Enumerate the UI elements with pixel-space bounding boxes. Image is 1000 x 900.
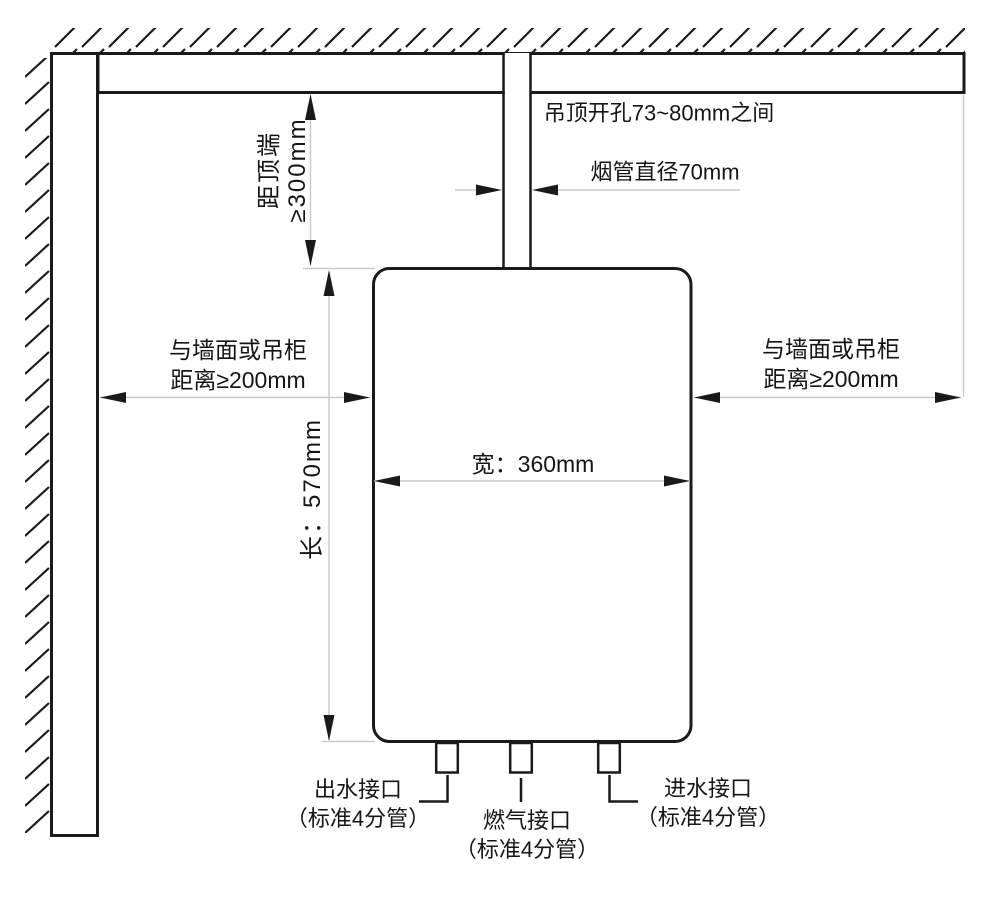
top-clearance-label: 距顶端 ≥300mm: [256, 117, 312, 222]
outlet-label: 出水接口 （标准4分管）: [286, 775, 430, 833]
ceiling-slab-hatch: [52, 28, 965, 52]
left-clearance-label: 与墙面或吊柜 距离≥200mm: [169, 335, 307, 395]
right-clearance-line1: 与墙面或吊柜: [762, 334, 900, 364]
outlet-label-line1: 出水接口: [286, 775, 430, 804]
right-clearance-label: 与墙面或吊柜 距离≥200mm: [762, 334, 900, 394]
inlet-label-line1: 进水接口: [636, 774, 780, 803]
gas-stub: [510, 743, 532, 773]
gas-label-line1: 燃气接口: [455, 806, 599, 835]
left-clearance-line2: 距离≥200mm: [169, 365, 307, 395]
top-clearance-line1: 距顶端: [256, 117, 284, 222]
top-clearance-line2: ≥300mm: [284, 117, 312, 222]
inlet-label-line2: （标准4分管）: [636, 803, 780, 832]
inlet-label: 进水接口 （标准4分管）: [636, 774, 780, 832]
right-clearance-line2: 距离≥200mm: [762, 364, 900, 394]
ceiling-opening-label: 吊顶开孔73~80mm之间: [544, 100, 774, 129]
gas-label-line2: （标准4分管）: [455, 835, 599, 864]
outlet-stub: [436, 743, 458, 773]
inlet-stub: [598, 743, 620, 773]
unit-width-label: 宽：360mm: [472, 449, 595, 479]
outlet-label-line2: （标准4分管）: [286, 804, 430, 833]
wall-hatch: [25, 58, 50, 833]
unit-height-label: 长：570mm: [299, 418, 327, 560]
left-wall: [52, 54, 98, 836]
inlet-leader-line: [610, 775, 639, 802]
water-heater-body: [374, 269, 692, 742]
gas-label: 燃气接口 （标准4分管）: [455, 806, 599, 864]
installation-diagram: 吊顶开孔73~80mm之间 烟管直径70mm 距顶端 ≥300mm 长：570m…: [0, 0, 1000, 900]
flue-diameter-label: 烟管直径70mm: [590, 159, 739, 188]
flue-pipe: [504, 52, 531, 268]
left-clearance-line1: 与墙面或吊柜: [169, 335, 307, 365]
